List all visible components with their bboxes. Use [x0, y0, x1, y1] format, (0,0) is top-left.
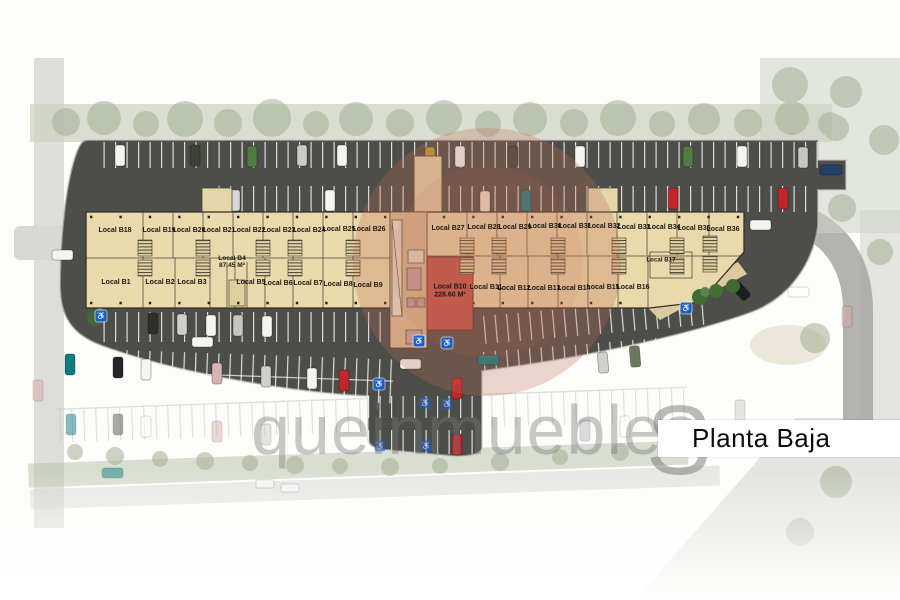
local-label-b9: Local B9: [353, 282, 382, 290]
local-label-b21: Local B21: [202, 227, 235, 235]
local-label-b6: Local B6: [263, 280, 292, 288]
local-label-b3: Local B3: [177, 279, 206, 287]
local-label-b1: Local B1: [101, 279, 130, 287]
local-label-b32: Local B32: [587, 223, 620, 231]
fade-overlay: [0, 470, 900, 600]
local-label-b24: Local B24: [292, 227, 325, 235]
local-label-b13: Local B13: [527, 285, 560, 293]
handicap-icon: ♿: [442, 338, 453, 349]
local-label-b17: Local B17: [646, 258, 675, 265]
floor-plan: queinmuebles S Local B18 Local B19 Local…: [0, 0, 900, 600]
handicap-icon: ♿: [414, 336, 425, 347]
local-label-b7: Local B7: [293, 280, 322, 288]
page-title: Planta Baja: [692, 423, 830, 454]
local-label-b29: Local B29: [498, 224, 531, 232]
local-label-b33: Local B33: [617, 224, 650, 232]
local-label-b18: Local B18: [98, 227, 131, 235]
title-box: Planta Baja: [658, 420, 900, 457]
local-label-b28: Local B28: [467, 224, 500, 232]
local-label-b2: Local B2: [145, 279, 174, 287]
local-label-b5: Local B5: [236, 279, 265, 287]
local-label-b34: Local B34: [647, 224, 680, 232]
local-label-b27: Local B27: [431, 225, 464, 233]
local-label-b19: Local B19: [142, 227, 175, 235]
local-label-b23: Local B23: [262, 227, 295, 235]
local-label-b10: Local B10 228.60 M²: [433, 283, 466, 298]
watermark-text: queinmuebles: [251, 390, 699, 470]
local-label-b30: Local B30: [528, 223, 561, 231]
local-label-b16: Local B16: [616, 284, 649, 292]
local-label-b36: Local B36: [706, 226, 739, 234]
site-plan-graphic: [0, 0, 900, 600]
local-label-b15: Local B15: [586, 284, 619, 292]
local-label-b12: Local B12: [497, 285, 530, 293]
handicap-icon: ♿: [96, 311, 107, 322]
local-label-b25: Local B25: [322, 226, 355, 234]
local-label-b4: Local B4 87.45 M²: [218, 255, 245, 270]
local-label-b26: Local B26: [352, 226, 385, 234]
handicap-icon: ♿: [374, 379, 385, 390]
handicap-icon: ♿: [681, 303, 692, 314]
local-label-b22: Local B22: [232, 227, 265, 235]
logo-watermark-inner: [391, 166, 583, 358]
local-label-b20: Local B20: [172, 227, 205, 235]
local-label-b8: Local B8: [323, 281, 352, 289]
